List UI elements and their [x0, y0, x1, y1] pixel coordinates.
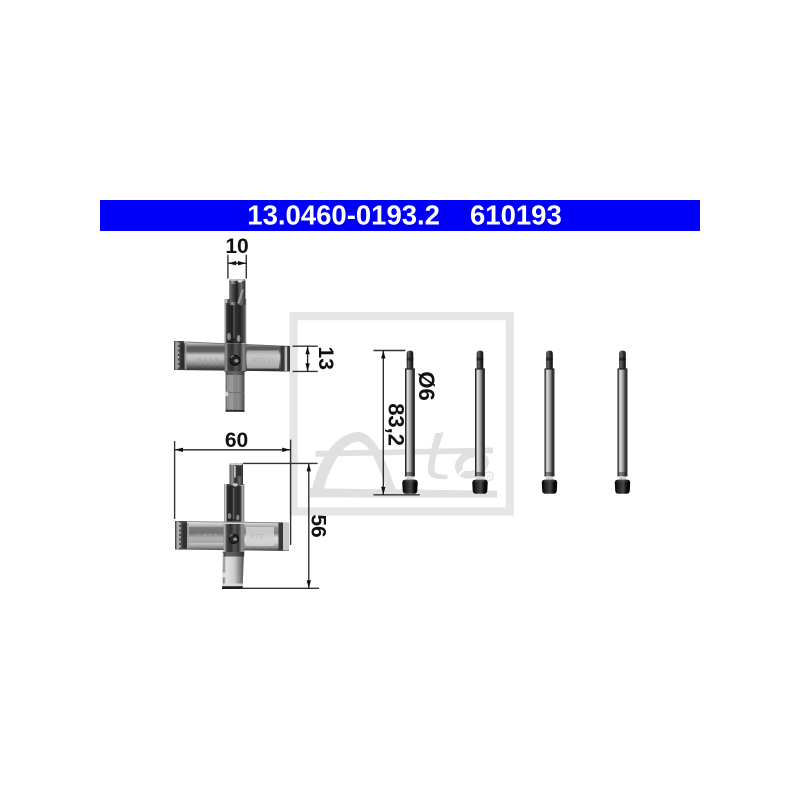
svg-text:13: 13	[314, 347, 337, 370]
svg-text:ATE: ATE	[250, 532, 264, 541]
svg-text:3411: 3411	[197, 357, 220, 367]
svg-text:ATE D: ATE D	[252, 356, 274, 365]
svg-text:610193: 610193	[470, 200, 562, 231]
svg-text:1411: 1411	[196, 532, 219, 542]
svg-text:R: R	[486, 474, 491, 481]
svg-text:Ø6: Ø6	[414, 371, 439, 400]
svg-text:10: 10	[225, 235, 248, 258]
svg-text:56: 56	[307, 514, 330, 537]
svg-text:83,2: 83,2	[384, 403, 409, 446]
svg-text:13.0460-0193.2: 13.0460-0193.2	[247, 200, 440, 231]
svg-text:60: 60	[225, 429, 248, 452]
